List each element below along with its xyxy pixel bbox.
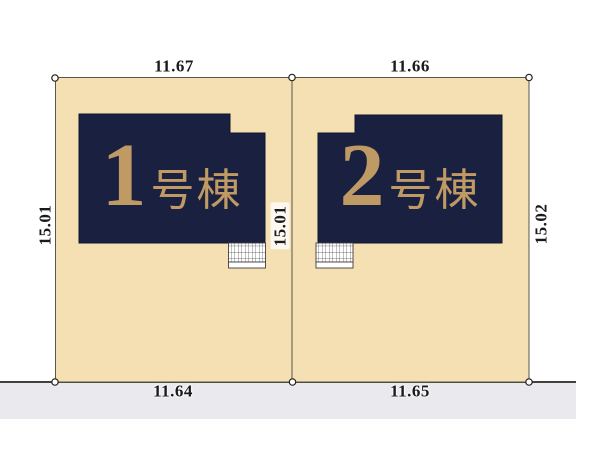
dimension-lot1-top: 11.67 <box>154 58 194 75</box>
building-1-porch <box>229 243 266 268</box>
corner-marker-bottom-left <box>52 379 58 385</box>
road-area <box>0 382 576 419</box>
building-1-footprint <box>79 114 265 243</box>
corner-marker-top-right <box>526 74 532 80</box>
dimension-lot2-top: 11.66 <box>390 58 430 75</box>
building-2-footprint <box>318 115 502 243</box>
dimension-left-side: 15.01 <box>37 205 54 246</box>
corner-marker-bottom-right <box>526 379 532 385</box>
site-plan-graphics <box>0 0 600 449</box>
dimension-middle: 15.01 <box>271 203 290 250</box>
dimension-lot2-bottom: 11.65 <box>390 383 430 400</box>
dimension-right-side: 15.02 <box>533 204 550 245</box>
building-2-porch <box>316 243 353 268</box>
corner-marker-top-left <box>52 75 58 81</box>
site-plan: 11.67 11.66 15.01 15.01 15.02 11.64 11.6… <box>0 0 600 449</box>
dimension-lot1-bottom: 11.64 <box>153 383 193 400</box>
corner-marker-bottom-middle <box>289 379 295 385</box>
corner-marker-top-middle <box>289 74 295 80</box>
